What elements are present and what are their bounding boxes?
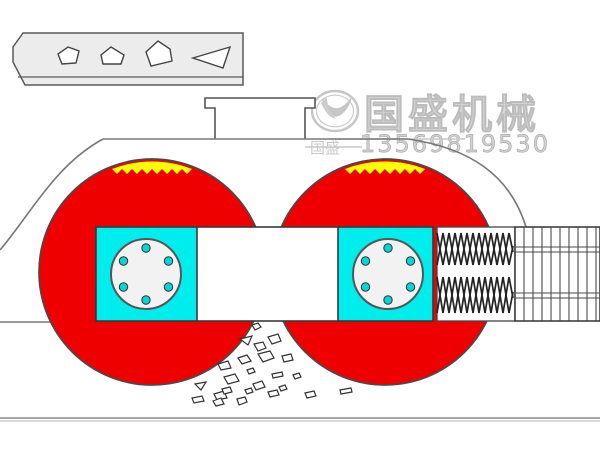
watermark-phone: 13569819530 (360, 130, 550, 158)
particle (195, 382, 206, 390)
particle (253, 381, 265, 390)
particle (238, 355, 251, 364)
bolt-icon (361, 283, 369, 291)
spring-seat-frame (515, 227, 600, 321)
bearing-shaft-assembly (96, 227, 433, 321)
tension-springs (437, 227, 515, 321)
particle (340, 388, 352, 394)
feed-chute (13, 33, 243, 85)
particle (305, 391, 316, 398)
particle (258, 351, 274, 362)
roller-crusher-diagram: 国盛机械 国盛 13569819530 (0, 0, 600, 450)
particle (268, 334, 281, 344)
particle (252, 323, 261, 330)
particle (254, 342, 266, 351)
watermark: 国盛机械 国盛 13569819530 (305, 91, 550, 158)
particle (268, 390, 279, 397)
bolt-icon (119, 283, 127, 291)
particle (247, 368, 255, 374)
bolt-icon (384, 244, 392, 252)
feed-inlet (205, 98, 315, 139)
particle (279, 385, 287, 391)
bolt-icon (164, 283, 172, 291)
bolt-icon (384, 296, 392, 304)
bolt-icon (142, 296, 150, 304)
bolt-icon (406, 257, 414, 265)
particle (293, 373, 301, 379)
bolt-icon (164, 257, 172, 265)
machine-base (0, 418, 600, 421)
bolt-icon (361, 257, 369, 265)
particle (224, 374, 239, 384)
bolt-icon (406, 283, 414, 291)
particle (237, 397, 247, 405)
particle (222, 387, 232, 394)
watermark-brand-small: 国盛 (310, 139, 340, 157)
particle (272, 372, 283, 378)
bolt-icon (142, 244, 150, 252)
particle (282, 354, 293, 362)
bolt-icon (119, 257, 127, 265)
particle (192, 396, 204, 403)
particle (245, 388, 253, 394)
